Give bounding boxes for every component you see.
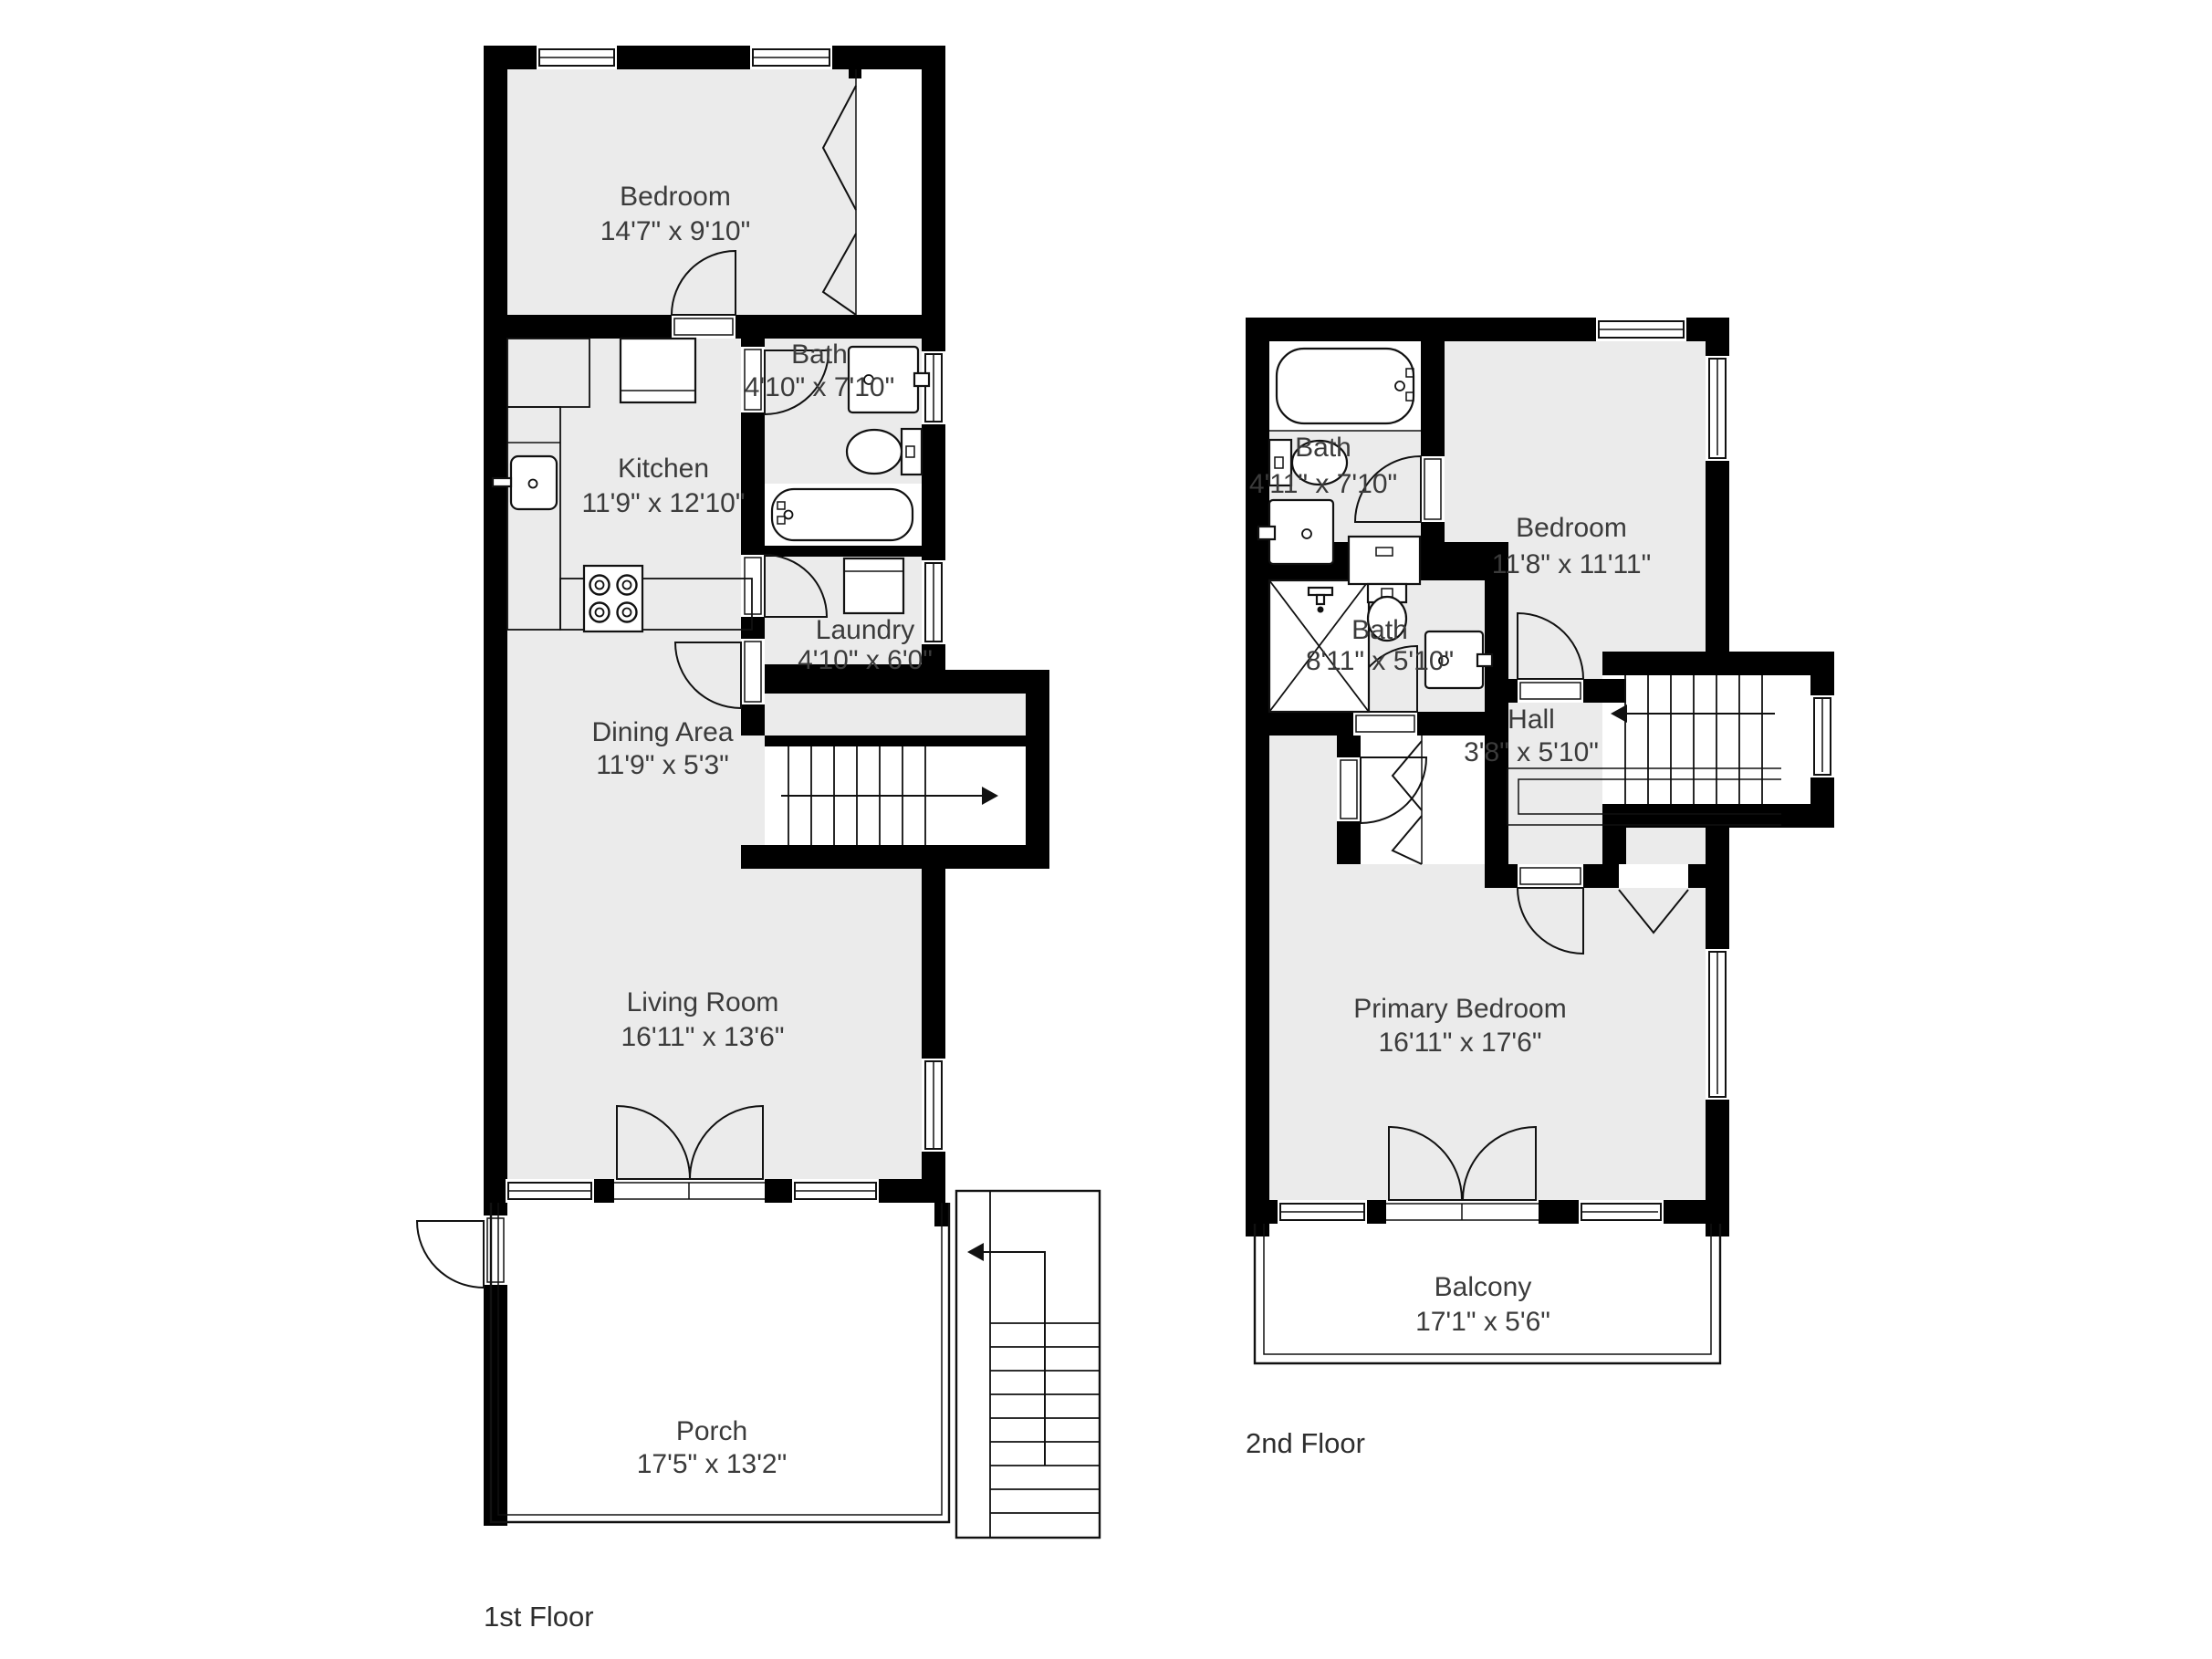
room-label-dims: 3'8" x 5'10" xyxy=(1464,737,1599,767)
room-label-name: Bedroom xyxy=(620,182,731,212)
window xyxy=(1810,695,1834,777)
door-gap xyxy=(741,555,765,617)
room-label-name: Bath xyxy=(1351,615,1408,645)
room-label-dims: 16'11" x 13'6" xyxy=(621,1022,785,1052)
window xyxy=(922,351,945,424)
floor-label-1st: 1st Floor xyxy=(484,1601,594,1633)
window xyxy=(792,1179,879,1203)
floor-label-2nd: 2nd Floor xyxy=(1246,1427,1365,1459)
window xyxy=(1278,1200,1367,1224)
room-label-name: Bath xyxy=(1295,433,1351,463)
toilet-icon xyxy=(847,429,922,475)
stair-arrow-head xyxy=(967,1243,984,1261)
room-label-name: Laundry xyxy=(816,615,914,645)
window xyxy=(1596,318,1686,341)
door-gap xyxy=(1518,679,1583,703)
room-label-name: Porch xyxy=(676,1416,747,1446)
window xyxy=(922,1059,945,1152)
floor-plan-2nd: Bath 4'11" x 7'10" Bedroom 11'8" x 11'11… xyxy=(1246,318,1834,1459)
stove-icon xyxy=(584,566,642,631)
door-gap xyxy=(1353,712,1417,736)
room-label-name: Primary Bedroom xyxy=(1353,994,1566,1024)
room-label-dims: 4'10" x 6'0" xyxy=(798,645,933,675)
room-label-dims: 4'10" x 7'10" xyxy=(745,372,895,402)
door-gap xyxy=(484,1216,507,1285)
room-label-dims: 11'9" x 12'10" xyxy=(582,488,746,518)
refrigerator-icon xyxy=(621,339,695,402)
window xyxy=(1706,949,1729,1100)
room-label-name: Bath xyxy=(791,339,848,370)
window xyxy=(922,560,945,644)
door-gap xyxy=(1619,864,1688,888)
window xyxy=(1706,356,1729,461)
bathtub-icon xyxy=(1277,349,1414,423)
floor-plan-1st: Bedroom 14'7" x 9'10" Bath 4'10" x 7'10"… xyxy=(417,46,1100,1633)
exterior-stairs xyxy=(956,1191,1100,1538)
bathtub-icon xyxy=(772,489,913,540)
room-label-dims: 17'1" x 5'6" xyxy=(1415,1307,1550,1337)
room-label-name: Dining Area xyxy=(591,717,733,747)
window xyxy=(1579,1200,1664,1224)
room-label-name: Balcony xyxy=(1435,1272,1532,1302)
door-gap xyxy=(672,315,736,339)
room-label-dims: 14'7" x 9'10" xyxy=(600,216,751,246)
door-gap xyxy=(1518,864,1583,888)
stair-direction-arrow xyxy=(978,1252,1045,1466)
room-label-dims: 16'11" x 17'6" xyxy=(1379,1028,1542,1058)
washer-icon xyxy=(844,558,903,613)
room-label-name: Hall xyxy=(1508,704,1555,735)
closet-1f-bedroom xyxy=(856,69,922,315)
window xyxy=(750,46,832,69)
room-label-dims: 11'9" x 5'3" xyxy=(596,750,729,780)
bathroom-sink-icon xyxy=(1349,537,1420,584)
window xyxy=(506,1179,594,1203)
door-gap xyxy=(1337,757,1361,821)
window xyxy=(537,46,617,69)
room-label-dims: 4'11" x 7'10" xyxy=(1249,469,1397,499)
room-label-name: Bedroom xyxy=(1516,513,1627,543)
room-fill-1f-vestibule xyxy=(922,694,1026,736)
room-label-dims: 17'5" x 13'2" xyxy=(637,1449,788,1479)
room-label-dims: 8'11" x 5'10" xyxy=(1306,646,1454,676)
stairwell-2f xyxy=(1602,675,1810,804)
room-label-name: Kitchen xyxy=(618,454,709,484)
floor-plan-canvas: Bedroom 14'7" x 9'10" Bath 4'10" x 7'10"… xyxy=(0,0,2212,1659)
room-label-dims: 11'8" x 11'11" xyxy=(1492,549,1652,579)
door-swing-icon xyxy=(417,1221,484,1288)
room-label-name: Living Room xyxy=(627,987,779,1017)
bathroom-sink-icon xyxy=(1258,500,1333,564)
door-gap xyxy=(741,639,765,704)
door-gap xyxy=(1421,456,1445,522)
